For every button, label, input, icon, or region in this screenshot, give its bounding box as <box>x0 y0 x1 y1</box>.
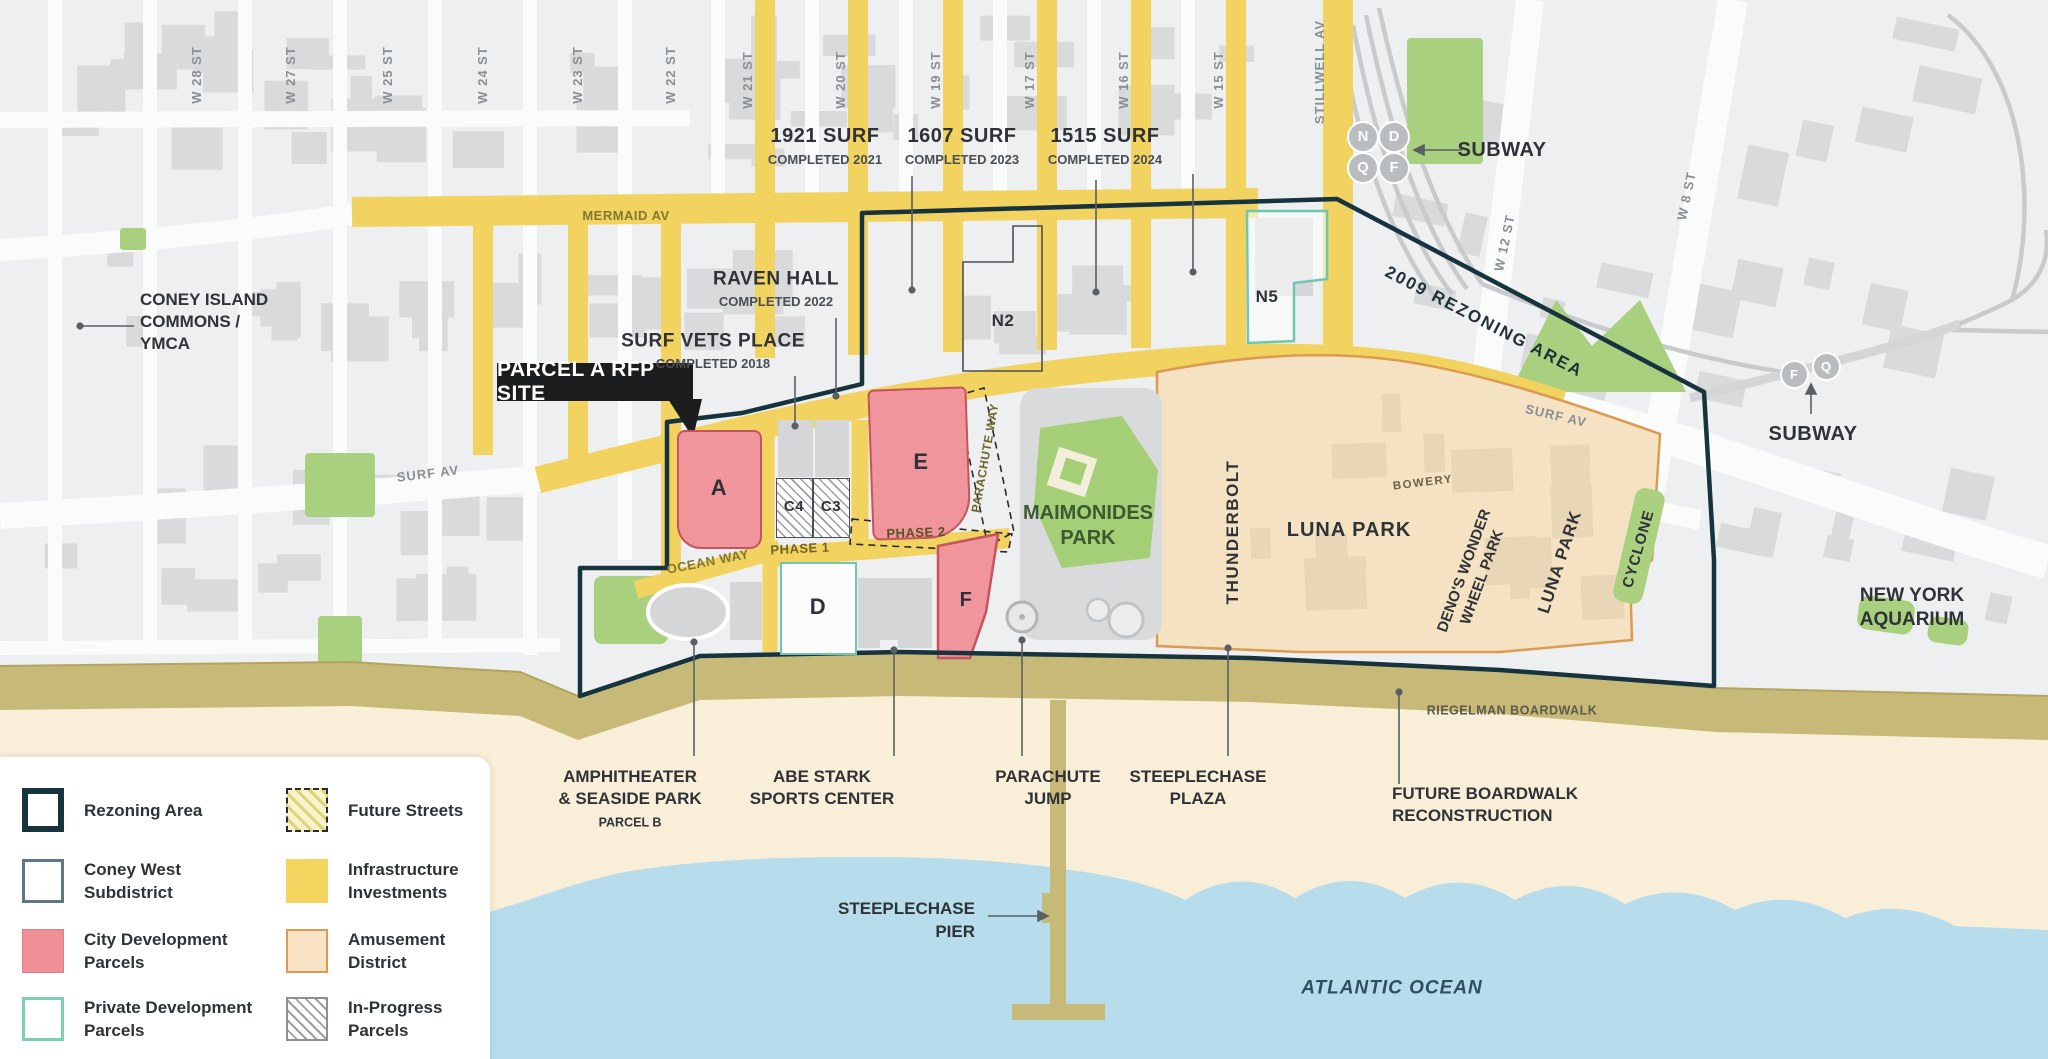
legend-swatch-infrastructure <box>286 859 328 903</box>
parcel-n2-label: N2 <box>992 311 1015 331</box>
steeplechase-pier: STEEPLECHASEPIER <box>838 897 975 943</box>
legend-item-amusement: AmusementDistrict <box>286 928 445 974</box>
new-york-aquarium: NEW YORKAQUARIUM <box>1860 584 1965 632</box>
dev-1921-status: COMPLETED 2021 <box>768 152 882 168</box>
dev-1607-surf: 1607 SURF <box>908 124 1017 148</box>
parcel-c3-label: C3 <box>821 498 841 516</box>
street-w15: W 15 ST <box>1211 51 1227 109</box>
dev-1921-surf: 1921 SURF <box>771 124 880 148</box>
legend-item-in-progress: In-ProgressParcels <box>286 996 442 1042</box>
legend-label-rezoning: Rezoning Area <box>84 799 202 822</box>
steeplechase-plaza: STEEPLECHASEPLAZA <box>1130 766 1267 810</box>
legend-swatch-city-dev <box>22 929 64 973</box>
coney-island-commons: CONEY ISLANDCOMMONS /YMCA <box>140 289 268 355</box>
dev-surf-vets: SURF VETS PLACE <box>621 330 805 353</box>
phase-1: PHASE 1 <box>770 539 830 558</box>
thunderbolt: THUNDERBOLT <box>1223 460 1243 605</box>
dev-surf-vets-status: COMPLETED 2018 <box>656 356 770 372</box>
legend-label-in-progress: In-ProgressParcels <box>348 996 442 1042</box>
legend-label-future-streets: Future Streets <box>348 799 463 822</box>
legend-item-private-dev: Private DevelopmentParcels <box>22 996 252 1042</box>
legend-item-coney-west: Coney WestSubdistrict <box>22 858 181 904</box>
amphitheater: AMPHITHEATER& SEASIDE PARK <box>558 766 701 810</box>
street-w27: W 27 ST <box>283 46 299 104</box>
atlantic-ocean: ATLANTIC OCEAN <box>1301 977 1482 1000</box>
luna-park: LUNA PARK <box>1287 518 1412 542</box>
dev-1515-status: COMPLETED 2024 <box>1048 152 1162 168</box>
dev-raven-status: COMPLETED 2022 <box>719 294 833 310</box>
subway-bullet-n-left: N <box>1347 121 1379 153</box>
subway-bullet-q-right: Q <box>1812 352 1841 381</box>
legend-label-coney-west: Coney WestSubdistrict <box>84 858 181 904</box>
legend-swatch-amusement <box>286 929 328 973</box>
street-w22: W 22 ST <box>663 46 679 104</box>
street-w28: W 28 ST <box>189 46 205 104</box>
street-w17: W 17 ST <box>1022 51 1038 109</box>
dev-1515-surf: 1515 SURF <box>1051 124 1160 148</box>
legend-swatch-private-dev <box>22 997 64 1041</box>
street-w16: W 16 ST <box>1116 51 1132 109</box>
coney-island-rezoning-map: PARCEL A RFP SITE W 28 STW 27 STW 25 STW… <box>0 0 2048 1059</box>
legend-item-infrastructure: InfrastructureInvestments <box>286 858 459 904</box>
parcel-b: PARCEL B <box>599 816 662 831</box>
legend-label-amusement: AmusementDistrict <box>348 928 445 974</box>
parcel-f-label: F <box>960 588 973 612</box>
legend-item-future-streets: Future Streets <box>286 788 463 832</box>
legend-label-city-dev: City DevelopmentParcels <box>84 928 228 974</box>
street-stillwell: STILLWELL AV <box>1312 20 1328 124</box>
parcel-d-label: D <box>810 594 826 620</box>
legend-swatch-rezoning <box>22 788 64 832</box>
street-w19: W 19 ST <box>928 51 944 109</box>
legend-swatch-in-progress <box>286 997 328 1041</box>
street-w24: W 24 ST <box>475 46 491 104</box>
subway-bullet-f-right: F <box>1780 360 1809 389</box>
dev-raven-hall: RAVEN HALL <box>713 268 839 291</box>
legend-label-private-dev: Private DevelopmentParcels <box>84 996 252 1042</box>
subway-bullet-d-left: D <box>1378 121 1410 153</box>
legend-item-city-dev: City DevelopmentParcels <box>22 928 228 974</box>
legend-label-infrastructure: InfrastructureInvestments <box>348 858 459 904</box>
street-w25: W 25 ST <box>380 46 396 104</box>
future-boardwalk: FUTURE BOARDWALKRECONSTRUCTION <box>1392 783 1578 827</box>
parcel-e-label: E <box>913 449 928 475</box>
parcel-c4-label: C4 <box>784 498 804 516</box>
subway-label-left: SUBWAY <box>1458 138 1547 162</box>
subway-bullet-f-left: F <box>1378 152 1410 184</box>
mermaid-av: MERMAID AV <box>582 208 669 224</box>
legend-item-rezoning: Rezoning Area <box>22 788 202 832</box>
parcel-n5-label: N5 <box>1256 287 1279 307</box>
subway-bullet-q-left: Q <box>1347 152 1379 184</box>
legend-swatch-future-streets <box>286 788 328 832</box>
legend-swatch-coney-west <box>22 859 64 903</box>
street-w23: W 23 ST <box>570 46 586 104</box>
parcel-a-label: A <box>711 475 727 501</box>
phase-2: PHASE 2 <box>886 524 946 542</box>
c3-building <box>815 420 849 477</box>
legend-panel: Rezoning AreaConey WestSubdistrictCity D… <box>0 757 490 1059</box>
riegelman-boardwalk: RIEGELMAN BOARDWALK <box>1427 704 1598 719</box>
subway-label-right: SUBWAY <box>1769 422 1858 446</box>
maimonides-park: MAIMONIDESPARK <box>1023 501 1153 551</box>
parachute-jump: PARACHUTEJUMP <box>995 766 1100 810</box>
street-w21: W 21 ST <box>740 51 756 109</box>
dev-1607-status: COMPLETED 2023 <box>905 152 1019 168</box>
abe-stark: ABE STARKSPORTS CENTER <box>750 766 895 810</box>
street-w20: W 20 ST <box>833 51 849 109</box>
